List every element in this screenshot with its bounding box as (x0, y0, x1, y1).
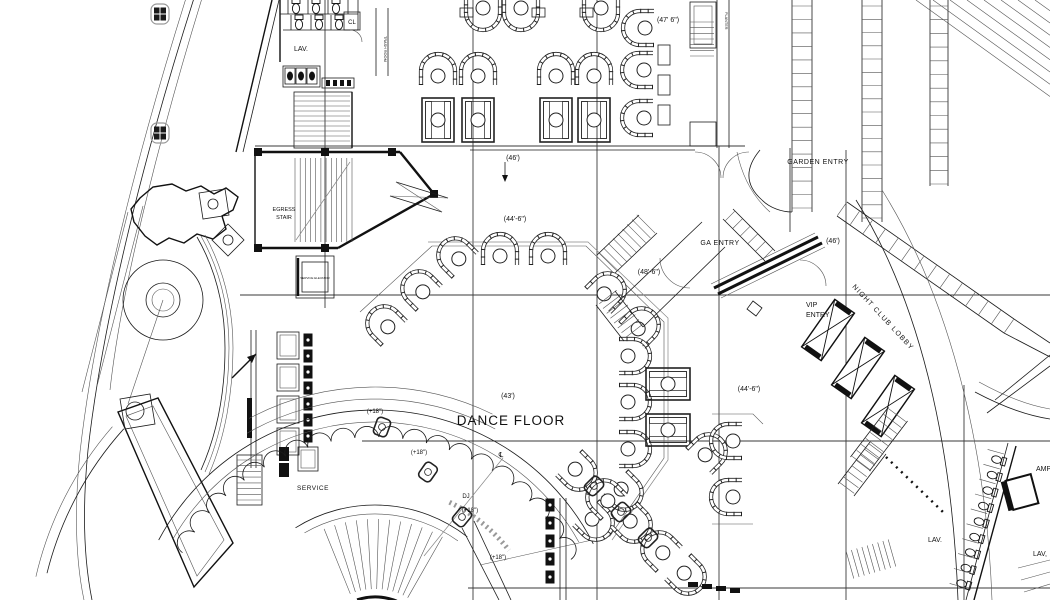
closet-label: CL (348, 20, 356, 26)
dim-plus18-d: (+18") (490, 555, 506, 561)
booth-unit (586, 266, 632, 312)
night-club-lobby-label: NIGHT CLUB LOBBY (851, 284, 915, 352)
sofa-unit (462, 98, 494, 142)
west-facade-arcs (36, 0, 203, 600)
egress-stair-room (254, 148, 448, 252)
dim-43: (43') (501, 393, 515, 400)
ga-entry-area (596, 209, 825, 341)
lav-a-label: LAV. (928, 537, 942, 544)
toilet-icon (332, 0, 340, 14)
table (417, 461, 439, 484)
booth-unit (395, 264, 441, 310)
booth-unit (421, 54, 455, 85)
lav-counter (1001, 474, 1039, 511)
booth-unit (584, 0, 618, 30)
dim-44-6-right: (44'-6") (738, 386, 761, 393)
escalator (832, 337, 885, 398)
service-elevator-label: SERVICE ELEVATOR (300, 276, 330, 280)
booth-unit (623, 11, 654, 45)
centerline-symbol: ℄ (498, 452, 504, 459)
dim-plus18-b: (+18") (411, 450, 427, 456)
toilet-icon (982, 485, 998, 497)
booth-unit (557, 451, 603, 497)
dim-46-right: (46') (826, 238, 840, 245)
booth-unit (687, 427, 733, 473)
dim-plus18-a: (+18") (367, 409, 383, 415)
vip-entry-label-2: ENTRY (806, 312, 830, 319)
toilet-icon (295, 15, 303, 30)
booth-unit (711, 480, 742, 514)
lav-b-label: LAV, (1033, 551, 1047, 558)
sofa-unit (422, 98, 454, 142)
vip-entry-label-1: VIP (806, 302, 818, 309)
door-swing (723, 152, 749, 178)
booth-unit (531, 234, 565, 265)
booth-unit (483, 234, 517, 265)
ramp-wedge (118, 394, 262, 587)
floor-plan-canvas: DANCE FLOOR (43') (46') (44'-6") (47' 6"… (0, 0, 1050, 600)
garden-entry-label: GARDEN ENTRY (787, 159, 849, 166)
lav-restroom-label: LAV. (294, 46, 308, 53)
service-label: SERVICE (297, 485, 329, 492)
text-labels: DANCE FLOOR (43') (46') (44'-6") (47' 6"… (273, 12, 1050, 561)
booth-unit (622, 53, 653, 87)
door-swing (660, 258, 690, 288)
lavatory-wing-right (838, 355, 1050, 600)
feature-bar-left (123, 184, 256, 474)
booth-unit (622, 101, 653, 135)
dim-44-6-top: (44'-6") (504, 216, 527, 223)
floor-plan-drawing: DANCE FLOOR (43') (46') (44'-6") (47' 6"… (0, 0, 1050, 600)
sofa-unit (578, 98, 610, 142)
booth-unit (431, 231, 477, 277)
table (372, 416, 391, 438)
column-marker (151, 4, 169, 24)
booth-unit (461, 54, 495, 85)
booth-unit (635, 525, 681, 571)
dim-48-6: (48'-6") (638, 269, 661, 276)
restroom-top-left (236, 0, 388, 152)
booth-unit (466, 0, 500, 30)
amp-label: AMP (1036, 466, 1050, 473)
egress-label-1: EGRESS (273, 207, 296, 213)
booth-unit (504, 0, 538, 30)
toilet-icon (315, 15, 323, 30)
dim-plus18-c: (+18") (462, 508, 478, 514)
grid-tick-arrow (502, 175, 508, 182)
dim-47-6: (47' 6") (657, 17, 679, 24)
sofa-unit (540, 98, 572, 142)
toilet-icon (312, 0, 320, 14)
escalator (862, 375, 915, 436)
dim-46-top: (46') (506, 155, 520, 162)
trash-room-label: TRASH ROOM (383, 36, 387, 62)
booth-unit (539, 54, 573, 85)
door-swing (695, 152, 721, 178)
egress-label-2: STAIR (276, 215, 292, 221)
door-swing (350, 30, 362, 42)
booth-unit (577, 54, 611, 85)
planter-label: PLANTER (724, 12, 728, 30)
booth-unit (360, 299, 406, 345)
booth-cluster-southeast (546, 427, 741, 600)
stair-upper (294, 92, 352, 148)
ga-entry-label: GA ENTRY (700, 240, 739, 247)
booth-unit (666, 555, 712, 600)
vip-lobby-area (737, 152, 992, 600)
toilet-icon (335, 15, 343, 30)
dance-floor-label: DANCE FLOOR (457, 413, 566, 428)
dj-label: DJ (462, 494, 469, 500)
toilet-icon (292, 0, 300, 14)
door-swing (800, 260, 826, 286)
